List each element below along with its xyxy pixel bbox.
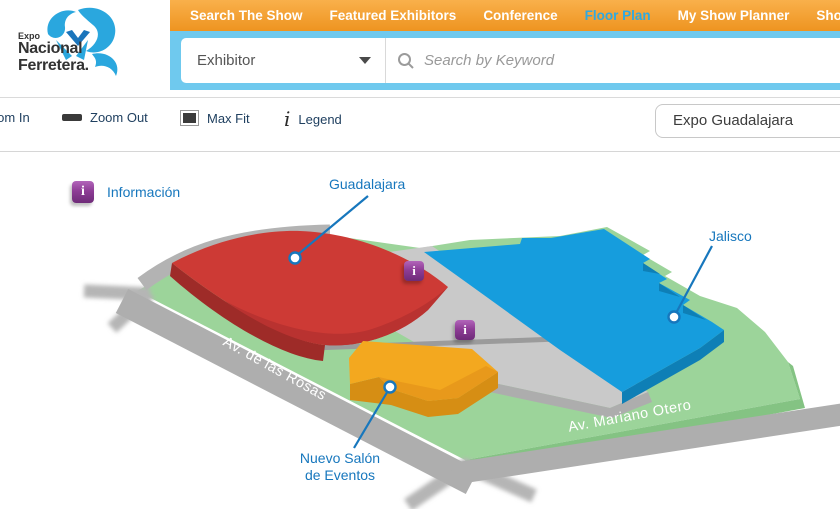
keyword-search-input[interactable]: Search by Keyword <box>386 38 840 83</box>
label-guadalajara[interactable]: Guadalajara <box>329 176 405 192</box>
max-fit-label: Max Fit <box>207 111 250 126</box>
logo-line-3: Ferretera. <box>18 58 89 75</box>
map-legend-label: Información <box>107 184 180 200</box>
divider-top <box>0 97 840 98</box>
category-dropdown[interactable]: Exhibitor <box>181 38 385 83</box>
max-fit-icon <box>180 110 199 126</box>
chevron-down-icon <box>359 57 371 64</box>
max-fit-button[interactable]: Max Fit <box>180 110 250 126</box>
legend-label: Legend <box>298 112 341 127</box>
search-icon <box>396 51 416 71</box>
info-icon: i <box>72 181 94 203</box>
label-nuevo-salon[interactable]: Nuevo Salón de Eventos <box>294 450 386 484</box>
top-navigation: Search The Show Featured Exhibitors Conf… <box>170 0 840 31</box>
app-logo[interactable]: Expo Nacional Ferretera. <box>8 2 168 97</box>
zoom-out-label: Zoom Out <box>90 110 148 125</box>
category-value: Exhibitor <box>197 52 255 69</box>
nav-conference[interactable]: Conference <box>483 8 557 23</box>
label-nuevo-salon-line1: Nuevo Salón <box>294 450 386 467</box>
label-jalisco[interactable]: Jalisco <box>709 228 752 244</box>
zoom-out-icon <box>62 114 82 121</box>
zoom-in-label: Zoom In <box>0 110 30 125</box>
nav-my-show-planner[interactable]: My Show Planner <box>678 8 790 23</box>
zoom-in-button[interactable]: Zoom In <box>0 110 30 125</box>
info-marker-icon[interactable]: i <box>455 320 475 340</box>
nav-featured-exhibitors[interactable]: Featured Exhibitors <box>330 8 457 23</box>
logo-line-2: Nacional <box>18 41 89 58</box>
label-nuevo-salon-line2: de Eventos <box>294 467 386 484</box>
legend-button[interactable]: i Legend <box>284 110 342 128</box>
search-box: Exhibitor Search by Keyword <box>181 38 840 83</box>
logo-text: Expo Nacional Ferretera. <box>18 32 89 75</box>
nav-search-the-show[interactable]: Search The Show <box>190 8 303 23</box>
legend-icon: i <box>284 110 290 128</box>
info-marker-icon[interactable]: i <box>404 261 424 281</box>
venue-selector[interactable]: Expo Guadalajara <box>655 104 840 138</box>
nav-show-website[interactable]: Show Webs <box>816 8 840 23</box>
keyword-placeholder: Search by Keyword <box>424 52 554 69</box>
search-strip: Exhibitor Search by Keyword <box>170 31 840 90</box>
floor-plan-map: i Información i i Guadalajara Jalisco Nu… <box>0 152 840 509</box>
zoom-out-button[interactable]: Zoom Out <box>62 110 148 125</box>
nav-floor-plan[interactable]: Floor Plan <box>585 8 651 23</box>
